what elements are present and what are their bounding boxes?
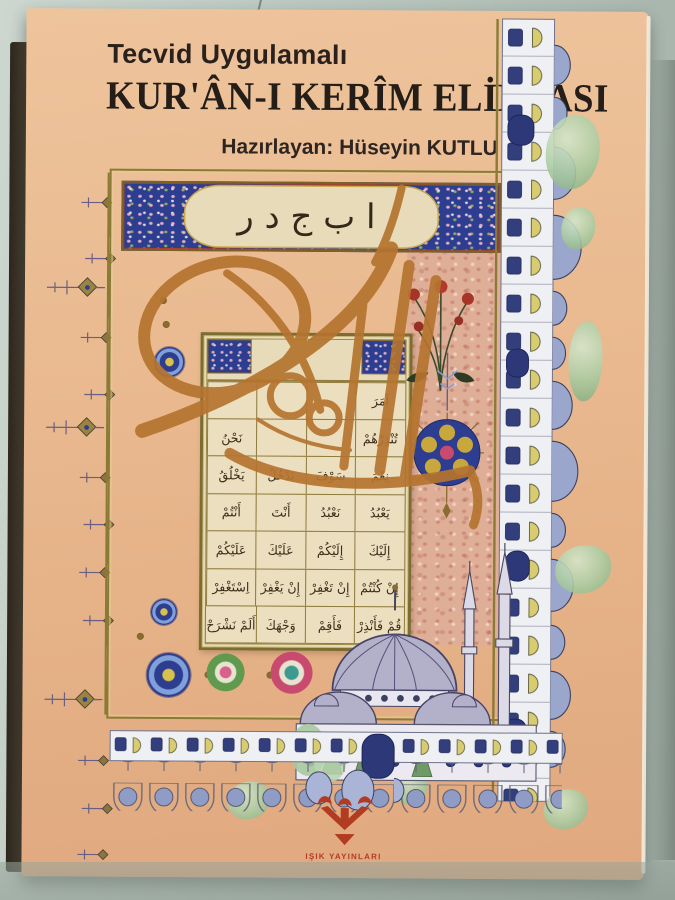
tree <box>544 789 588 829</box>
publisher-tulip-mark <box>288 796 400 847</box>
elifba-cell: إِلَيْكُمْ <box>305 531 356 570</box>
margin-tig-ornaments <box>35 166 117 876</box>
elifba-cell: إِلَيْكَ <box>354 531 405 570</box>
elifba-cell: أَنْتَ <box>255 493 306 532</box>
publisher-logo: IŞIK YAYINLARI <box>287 796 399 862</box>
elifba-row: آمَرَ <box>207 381 405 420</box>
elifba-cell: عَلَيْكَ <box>255 531 306 570</box>
series-title: Tecvid Uygulamalı <box>107 39 347 71</box>
gold-dot <box>160 297 167 304</box>
gold-dot <box>137 633 144 640</box>
elifba-row: إِلَيْكَإِلَيْكُمْعَلَيْكَعَلَيْكُمْ <box>206 531 404 570</box>
elifba-cell <box>256 381 307 420</box>
page-corner-ornament <box>361 340 405 374</box>
tree <box>568 321 602 401</box>
page-top-illumination <box>207 339 405 382</box>
tree <box>228 781 270 819</box>
marbled-ebru-texture <box>405 252 509 645</box>
elifba-row: نِعْمَسَوْفَيَدْخُلُيَخْلُقُ <box>207 456 405 495</box>
elifba-cell <box>305 419 356 458</box>
elifba-cell: يَخْلُقُ <box>206 456 257 495</box>
elifba-cell <box>207 381 258 420</box>
elifba-cell: قُمْ فَأَنْذِرْ <box>354 606 405 645</box>
elifba-cell: إِنْ كُنْتُمْ <box>354 569 405 608</box>
elifba-cell: اِسْتَغْفِرْ <box>206 568 257 607</box>
table-shadow <box>649 60 675 860</box>
elifba-row: قُمْ فَأَنْذِرْفَأَقِمْوَجْهَكَأَلَمْ نَ… <box>206 606 404 645</box>
tree <box>555 545 611 593</box>
book-cover: Tecvid Uygulamalı KUR'ÂN-I KERÎM ELİFBAS… <box>21 8 648 880</box>
elifba-cell: نِعْمَ <box>355 456 406 495</box>
elifba-cell: فَأَقِمْ <box>305 606 356 645</box>
elifba-cell: سَوْفَ <box>305 456 356 495</box>
elifba-cell: وَجْهَكَ <box>255 606 306 645</box>
header-illumination-panel: ا ب ج د ر <box>121 181 501 253</box>
elifba-cell: عَلَيْكُمْ <box>206 530 257 569</box>
gold-dot <box>163 321 170 328</box>
tree <box>546 115 600 189</box>
elifba-page: آمَرَتُنْذِرْهُمْنَحْنُنِعْمَسَوْفَيَدْخ… <box>199 332 413 651</box>
tree <box>561 207 595 249</box>
rosette-medallion <box>154 347 184 377</box>
page-corner-ornament <box>207 339 251 373</box>
elifba-cell <box>256 418 307 457</box>
elifba-row: إِنْ كُنْتُمْإِنْ تَغْفِرْإِنْ يَغْفِرْا… <box>206 568 404 607</box>
elifba-row: تُنْذِرْهُمْنَحْنُ <box>207 419 405 458</box>
elifba-cell: نَعْبُدُ <box>305 494 356 533</box>
elifba-cell: آمَرَ <box>355 382 406 421</box>
elifba-cell: أَلَمْ نَشْرَحْ <box>205 605 256 644</box>
rosette-medallion <box>206 653 244 691</box>
elifba-cell: إِنْ يَغْفِرْ <box>255 568 306 607</box>
publisher-name: IŞIK YAYINLARI <box>287 852 399 862</box>
elifba-cell: يَعْبُدُ <box>354 494 405 533</box>
elifba-row: يَعْبُدُنَعْبُدُأَنْتَأَنْتُمْ <box>206 493 404 532</box>
elifba-word-grid: آمَرَتُنْذِرْهُمْنَحْنُنِعْمَسَوْفَيَدْخ… <box>206 381 406 644</box>
arabic-alphabet-letters: ا ب ج د ر <box>123 183 499 251</box>
photo-of-book-on-table: Tecvid Uygulamalı KUR'ÂN-I KERÎM ELİFBAS… <box>0 0 675 900</box>
elifba-cell: يَدْخُلُ <box>256 456 307 495</box>
elifba-cell: نَحْنُ <box>206 418 257 457</box>
book-title: KUR'ÂN-I KERÎM ELİFBASI <box>106 73 609 123</box>
rosette-medallion <box>270 652 312 694</box>
author-line: Hazırlayan: Hüseyin KUTLU <box>221 135 498 161</box>
elifba-cell <box>306 381 357 420</box>
elifba-cell: إِنْ تَغْفِرْ <box>305 568 356 607</box>
elifba-cell: تُنْذِرْهُمْ <box>355 419 406 458</box>
illuminated-frame: ا ب ج د ر آمَرَتُنْذِرْهُمْنَحْنُنِعْمَس… <box>106 169 513 721</box>
rosette-medallion <box>151 599 177 625</box>
rosette-medallion <box>146 653 190 697</box>
elifba-cell: أَنْتُمْ <box>206 493 257 532</box>
